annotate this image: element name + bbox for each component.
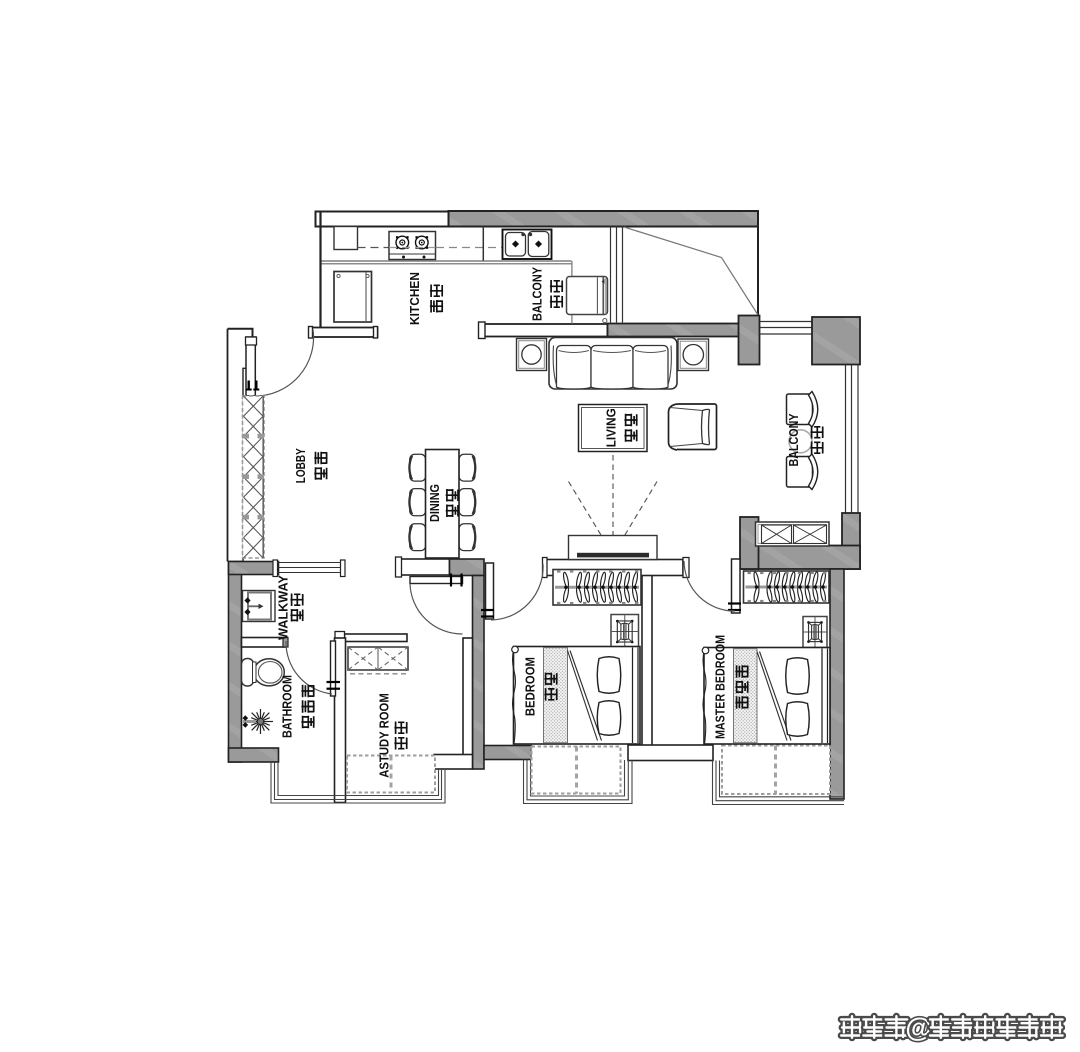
svg-text:LIVING: LIVING (605, 408, 619, 447)
svg-text:ASTUDY ROOM: ASTUDY ROOM (377, 693, 391, 778)
svg-text:DINING: DINING (428, 484, 442, 522)
svg-text:KITCHEN: KITCHEN (408, 272, 422, 325)
svg-text:BALCONY: BALCONY (787, 413, 801, 467)
svg-text:WALKWAY: WALKWAY (277, 574, 291, 640)
svg-text:BEDROOM: BEDROOM (523, 657, 537, 716)
svg-text:LOBBY: LOBBY (294, 448, 308, 484)
svg-text:MASTER BEDROOM: MASTER BEDROOM (714, 635, 728, 739)
svg-text:BATHROOM: BATHROOM (281, 675, 295, 738)
svg-text:BALCONY: BALCONY (531, 266, 545, 321)
